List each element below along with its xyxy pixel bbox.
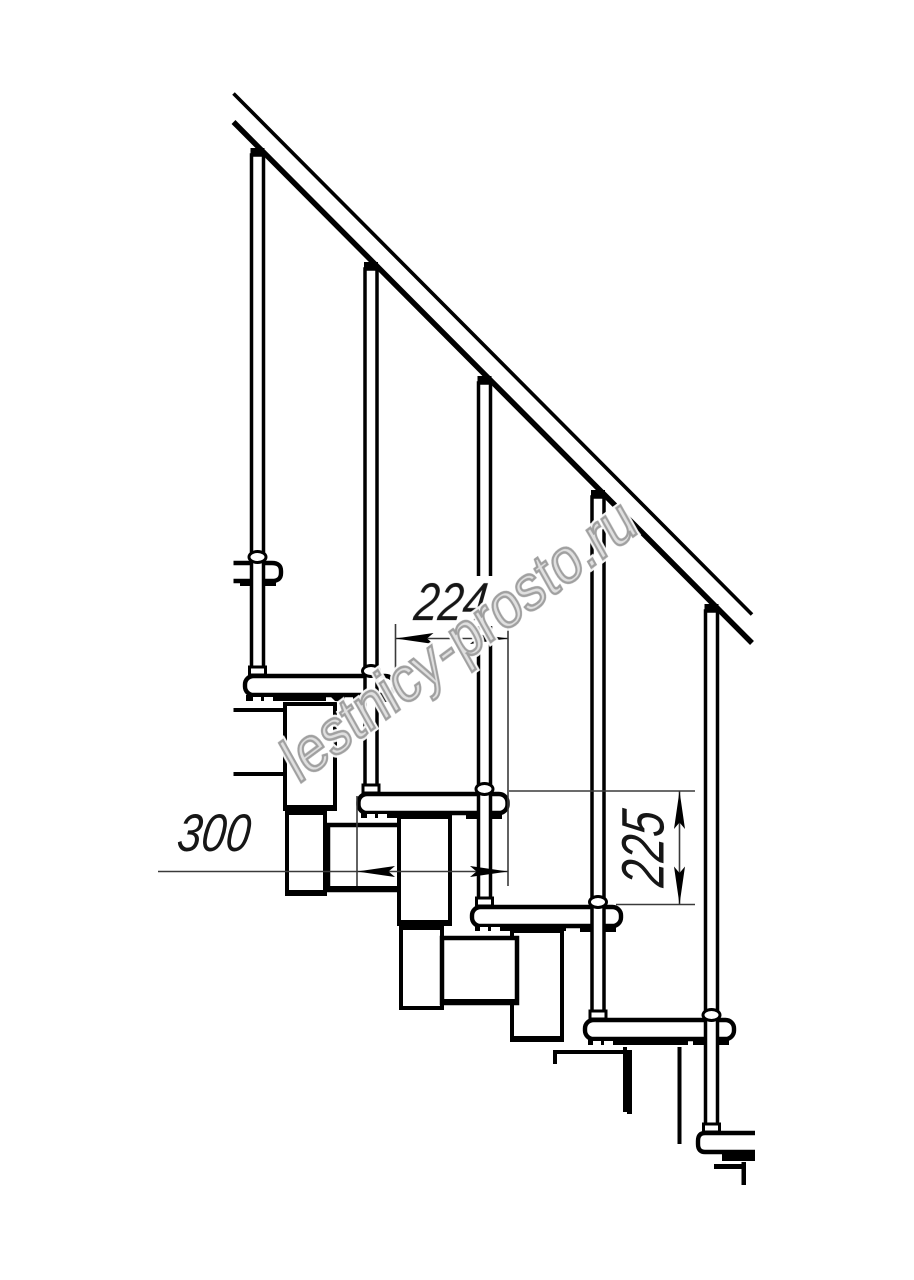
svg-text:lestnicy-prosto.ru: lestnicy-prosto.ru [270,482,646,796]
svg-text:225: 225 [611,806,677,890]
svg-text:300: 300 [174,804,254,863]
